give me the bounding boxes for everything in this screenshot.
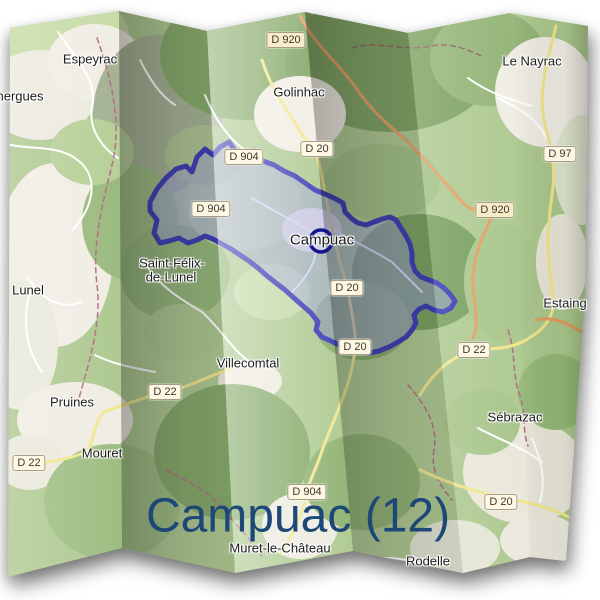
map-title: Campuac (12) xyxy=(146,489,450,544)
folded-map-poster: nerguesEspeyracGolinhacLe NayracLunelSai… xyxy=(0,0,600,600)
